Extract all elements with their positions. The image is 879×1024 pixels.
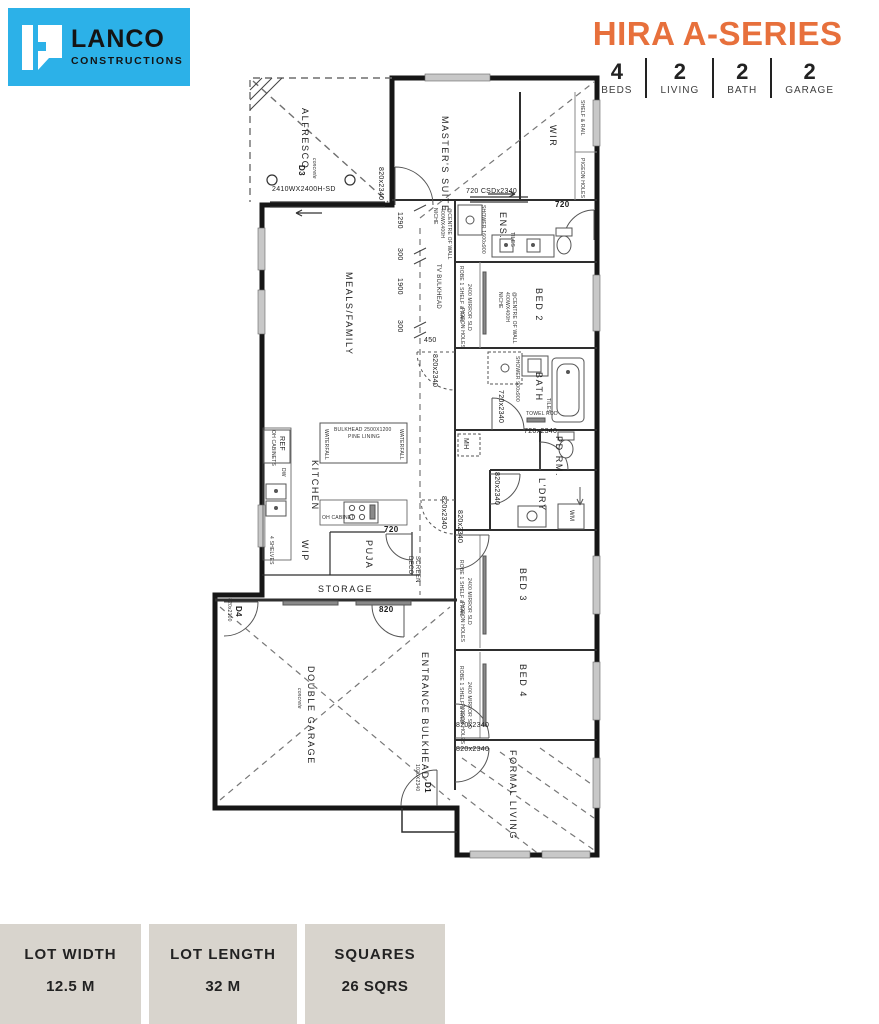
room-label-bed2: BED 2 [534,288,543,322]
note-waterfall-right: WATERFALL [398,429,403,460]
door-size-bed2: 820x2340 [431,354,438,387]
note-niche-masters-1: NICHE [432,208,437,225]
note-pigeon-bed3: PIGEON HOLES [459,602,464,642]
feature-label-shelf-rail: SHELF & RAIL [579,100,584,136]
feature-label-mh: MH [462,438,469,450]
alfresco-post [267,175,277,185]
room-label-bed4: BED 4 [518,664,527,698]
room-label-kitchen: KITCHEN [310,460,319,511]
door-label-820-garage: 820 [379,606,394,614]
door-size-d1: 1020X2340 [414,764,419,791]
room-label-alfresco: ALFRESCO [300,108,309,169]
room-label-double-garage: DOUBLE GARAGE [306,666,315,765]
room-label-masters-suite: MASTER'S SUITE [440,116,449,213]
lot-length-label: LOT LENGTH [149,946,297,963]
note-waterfall-left: WATERFALL [323,429,328,460]
room-label-bed3: BED 3 [518,568,527,602]
door-label-d4: D4 [234,606,242,617]
note-niche-bed2-2: 400WX400H [504,292,509,322]
door-size-bath: 720x2340 [497,390,504,423]
door-size-pd-rm: 720x2340 [524,428,557,435]
info-box-lot-length: LOT LENGTH 32 M [149,924,297,1024]
note-niche-bed2-3: @CENTRE OF WALL [511,292,516,344]
dim-1290: 1290 [396,212,403,229]
room-label-wir: WIR [548,125,557,147]
dim-1900: 1900 [396,278,403,295]
room-label-entrance-bulkhead: ENTRANCE BULKHEAD [420,652,429,780]
room-note-alfresco: concrete [311,158,316,179]
feature-label-oh-cabinet: OH CABINET [322,516,355,521]
info-box-lot-width: LOT WIDTH 12.5 M [0,924,141,1024]
room-label-bath: BATH [534,372,543,402]
feature-label-dw: DW [280,468,285,477]
note-tiles-ens: TILES [509,232,514,247]
door-size-hall: 820x2340 [440,496,447,529]
feature-label-ref: REF [278,436,285,451]
note-pigeon-bed2: PIGEON HOLES [459,308,464,348]
note-niche-masters-3: @CENTRE OF WALL [446,208,451,260]
room-label-wip: WIP [300,540,309,562]
feature-label-deco-1: DECO [407,556,413,575]
alfresco-outline [250,78,392,202]
feature-label-deco-2: SCREEN [414,556,420,583]
note-island-bulkhead-1: BULKHEAD 2500X1200 [334,428,392,433]
note-niche-masters-2: 400WX400H [439,208,444,238]
door-label-d1: D1 [423,782,431,793]
room-note-garage-concrete: concrete [296,688,301,709]
room-label-formal-living: FORMAL LIVING [508,750,517,840]
lot-width-label: LOT WIDTH [0,946,141,963]
feature-label-tv-bulkhead: TV BULKHEAD [435,264,441,309]
squares-label: SQUARES [305,946,445,963]
feature-label-towel-rod: TOWEL ROD [526,412,558,417]
dim-300-a: 300 [396,248,403,261]
room-label-ldry: L'DRY [537,478,546,512]
dim-450: 450 [424,337,437,344]
room-label-puja: PUJA [364,540,373,569]
dim-300-b: 300 [396,320,403,333]
door-label-720-ens: 720 [555,201,570,209]
note-mirror-bed3: 2400 MIRROR SLD [466,578,471,625]
lot-length-value: 32 M [149,978,297,995]
note-island-bulkhead-2: PINE LINING [348,435,380,440]
room-label-ens: ENS. [498,212,507,239]
alfresco-post [345,175,355,185]
feature-label-4-shelves: 4 SHELVES [268,536,273,565]
door-size-bed3: 820x2340 [456,510,463,543]
door-label-csd: 720 CSDx2340 [466,188,517,195]
door-size-bed4: 820x2340 [456,722,489,729]
info-box-squares: SQUARES 26 SQRS [305,924,445,1024]
note-shower-bath: SHOWER 900x900 [514,356,519,402]
feature-label-pigeon-holes: PIGEON HOLES [579,158,584,198]
door-size-masters: 820x2340 [377,167,384,200]
lot-width-value: 12.5 M [0,978,141,995]
note-shower-ens: SHOWER 1600x900 [480,205,485,254]
door-size-formal: 820x2340 [456,746,489,753]
feature-label-oh-cabinets: OH CABINETS [270,430,275,466]
room-label-pd-rm: PD RM. [554,436,563,477]
note-niche-bed2-1: NICHE [497,292,502,309]
door-size-d3: 2410WX2400H-SD [272,186,336,193]
note-mirror-bed2: 2400 MIRROR SLD [466,284,471,331]
door-size-d4: 820x2100 [226,598,231,622]
squares-value: 26 SQRS [305,978,445,995]
door-label-d3: D3 [297,165,305,176]
door-size-ldry: 820x2340 [493,472,500,505]
feature-label-wm: WM [568,510,574,521]
room-label-meals-family: MEALS/FAMILY [344,272,353,356]
room-label-storage: STORAGE [318,585,373,594]
door-label-720-puja: 720 [384,526,399,534]
